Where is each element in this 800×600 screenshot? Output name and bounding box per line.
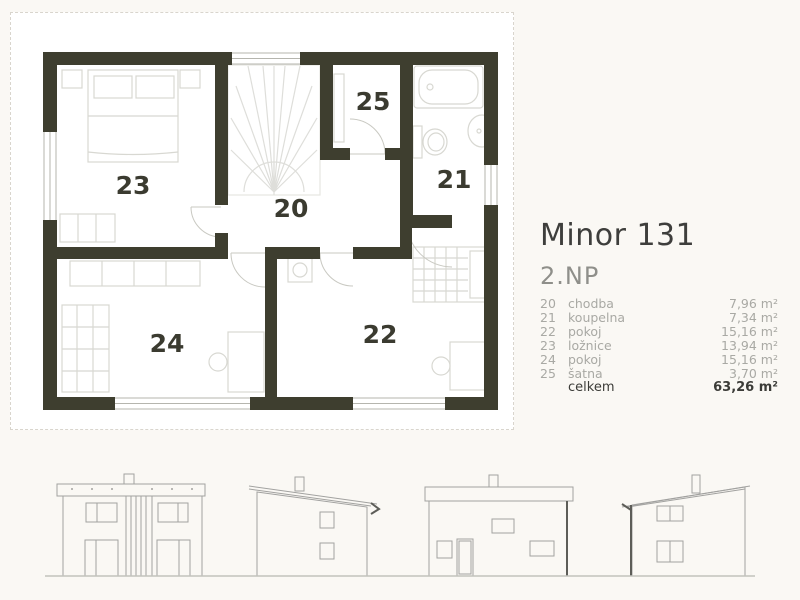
room-list: 20 chodba 7,96 m² 21 koupelna 7,34 m² 22… (540, 297, 778, 395)
room-label-hallway: 20 (274, 194, 309, 223)
door-closet25 (350, 119, 385, 154)
bed-room22 (413, 247, 487, 302)
room-area: 13,94 m² (721, 339, 778, 353)
room-area: 15,16 m² (721, 353, 778, 367)
roof-fasteners (71, 488, 193, 490)
total-label: celkem (568, 381, 713, 395)
list-item: 24 pokoj 15,16 m² (540, 353, 778, 367)
total-area: 63,26 m² (713, 381, 778, 395)
room-area: 15,16 m² (721, 325, 778, 339)
elevation-side-left (249, 477, 379, 576)
room-area: 7,34 m² (729, 311, 778, 325)
dresser (60, 214, 115, 242)
staircase (228, 65, 320, 195)
list-item: 23 ložnice 13,94 m² (540, 339, 778, 353)
room-label-room-right: 22 (363, 320, 398, 349)
elevation-side-right (622, 475, 750, 576)
cabinet-row (70, 261, 200, 286)
room-number: 23 (540, 339, 568, 353)
room-number: 25 (540, 367, 568, 381)
room-area: 7,96 m² (729, 297, 778, 311)
elevation-rear (425, 475, 573, 576)
room-label-bedroom: 23 (116, 171, 151, 200)
room-name: šatna (568, 367, 729, 381)
total-row: celkem 63,26 m² (540, 381, 778, 395)
room-number: 24 (540, 353, 568, 367)
toilet (413, 126, 447, 158)
page-title: Minor 131 (540, 218, 695, 253)
room-name: ložnice (568, 339, 721, 353)
window-right (485, 165, 497, 205)
floor-label: 2.NP (540, 262, 599, 290)
room-label-closet: 25 (356, 87, 391, 116)
list-item: 25 šatna 3,70 m² (540, 367, 778, 381)
door-room23 (191, 207, 221, 237)
window-left (44, 132, 56, 220)
room-number: 22 (540, 325, 568, 339)
room-label-bathroom: 21 (437, 165, 472, 194)
list-item: 22 pokoj 15,16 m² (540, 325, 778, 339)
door-room22 (320, 253, 353, 286)
door-bathroom (407, 222, 452, 267)
washbasin (288, 258, 312, 282)
desk-room22 (432, 342, 487, 390)
room-name: koupelna (568, 311, 729, 325)
desk-room24 (209, 332, 264, 392)
window-bottom-left (115, 398, 250, 409)
elevations (45, 474, 755, 576)
room-name: pokoj (568, 325, 721, 339)
door-room24 (231, 253, 265, 287)
list-item: 21 koupelna 7,34 m² (540, 311, 778, 325)
bathtub (414, 66, 483, 108)
room-label-room-left: 24 (150, 329, 185, 358)
room-area: 3,70 m² (729, 367, 778, 381)
wardrobe (62, 305, 109, 392)
room-number: 21 (540, 311, 568, 325)
walls (43, 52, 498, 410)
window-bottom-right (353, 398, 445, 409)
window-top (232, 53, 300, 64)
room-number: 20 (540, 297, 568, 311)
closet-shelf (334, 74, 344, 142)
furniture-layer (60, 65, 496, 392)
list-item: 20 chodba 7,96 m² (540, 297, 778, 311)
elevation-front (57, 474, 205, 576)
room-name: chodba (568, 297, 729, 311)
room-name: pokoj (568, 353, 721, 367)
bed (62, 70, 200, 162)
